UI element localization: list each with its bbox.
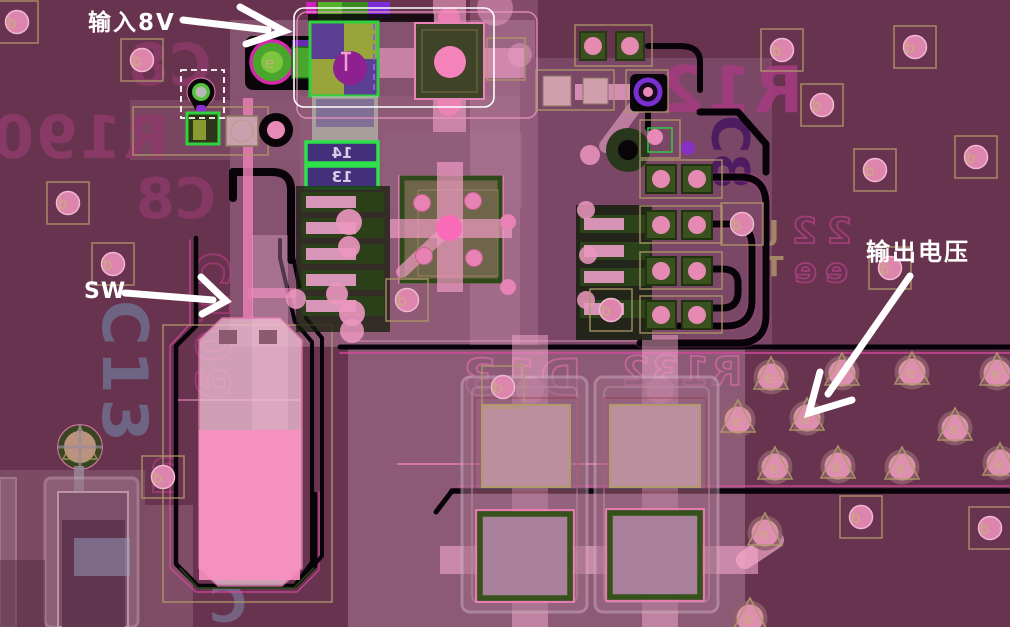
silk-22: 22 (782, 211, 852, 252)
via-e-label: e (265, 54, 274, 72)
annotation-input-8v: 输入8V (88, 9, 176, 36)
annotation-sw: SW (84, 279, 126, 304)
green-ring-via[interactable] (58, 425, 102, 470)
pin-pads-13-14[interactable]: 14 13 (306, 142, 378, 188)
silk-c8-mid: C8 (136, 167, 216, 232)
pcb-layout-viewport[interactable]: b e R190 C8 C8 C13 R12 C8 D13 R132 C109 … (0, 0, 1010, 627)
silk-c13: C13 (88, 300, 161, 447)
pin13-label: 13 (332, 168, 353, 186)
annotation-output-voltage: 输出电压 (866, 238, 970, 266)
pin14-label: 14 (332, 144, 353, 162)
pcb-canvas[interactable]: b e R190 C8 C8 C13 R12 C8 D13 R132 C109 … (0, 0, 1010, 627)
silk-ee: ee (786, 251, 848, 291)
silk-r190: R190 (0, 103, 170, 173)
